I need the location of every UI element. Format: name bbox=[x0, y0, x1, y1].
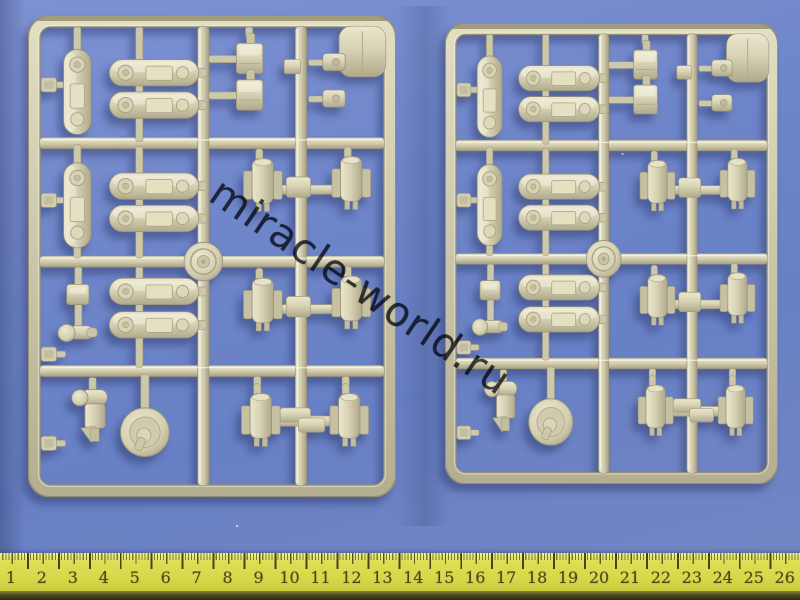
ruler-number: 22 bbox=[651, 568, 671, 587]
ruler-number: 17 bbox=[496, 568, 516, 587]
ruler-number: 3 bbox=[68, 568, 78, 587]
ruler-number: 26 bbox=[775, 568, 795, 587]
ruler-number: 7 bbox=[192, 568, 202, 587]
photo-scene: miracle-world.ru 12345678910111213141516… bbox=[0, 0, 800, 600]
ruler-number: 5 bbox=[130, 568, 140, 587]
ruler-number: 4 bbox=[99, 568, 109, 587]
ruler-bottom-edge bbox=[0, 591, 800, 600]
ruler-number: 8 bbox=[223, 568, 233, 587]
ruler: 1234567891011121314151617181920212223242… bbox=[0, 553, 800, 600]
ruler-number: 16 bbox=[465, 568, 485, 587]
ruler-number: 25 bbox=[744, 568, 764, 587]
ruler-number: 12 bbox=[341, 568, 361, 587]
ruler-number: 19 bbox=[558, 568, 578, 587]
left-edge-shadow bbox=[0, 0, 26, 556]
ruler-number: 11 bbox=[310, 568, 330, 587]
sprue-frame-and-parts bbox=[451, 29, 773, 478]
between-sprues-shadow bbox=[396, 6, 450, 526]
ruler-number: 15 bbox=[434, 568, 454, 587]
ruler-number: 14 bbox=[403, 568, 423, 587]
ruler-number: 23 bbox=[682, 568, 702, 587]
ruler-number: 24 bbox=[713, 568, 733, 587]
sprue-right bbox=[445, 23, 778, 484]
ruler-number: 21 bbox=[620, 568, 640, 587]
ruler-number: 13 bbox=[372, 568, 392, 587]
ruler-number: 2 bbox=[37, 568, 47, 587]
ruler-number: 18 bbox=[527, 568, 547, 587]
dust-speck bbox=[236, 525, 238, 527]
ruler-number: 10 bbox=[279, 568, 299, 587]
ruler-number: 6 bbox=[161, 568, 171, 587]
ruler-number: 9 bbox=[253, 568, 263, 587]
ruler-number: 1 bbox=[6, 568, 16, 587]
ruler-number: 20 bbox=[589, 568, 609, 587]
